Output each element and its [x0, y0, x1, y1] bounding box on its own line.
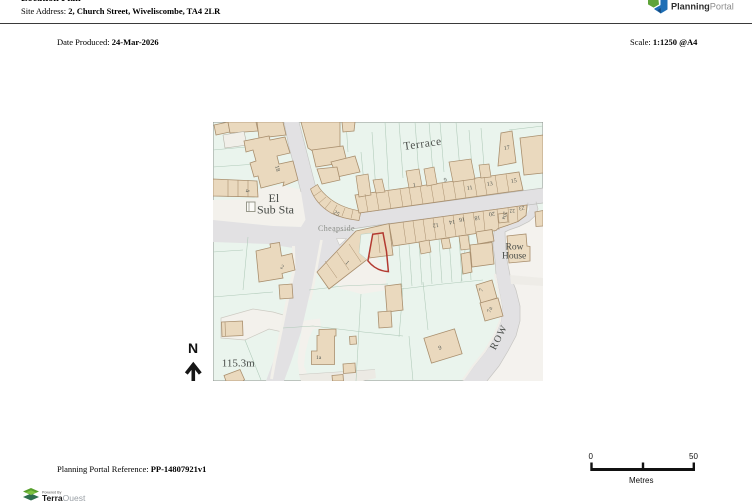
- svg-text:16: 16: [458, 215, 465, 222]
- svg-text:12: 12: [432, 221, 439, 228]
- svg-text:Sub Sta: Sub Sta: [257, 203, 295, 217]
- svg-text:PlanningPortal: PlanningPortal: [671, 2, 734, 12]
- svg-text:11: 11: [466, 185, 473, 192]
- svg-text:1a: 1a: [316, 355, 322, 361]
- svg-text:TerraQuest: TerraQuest: [42, 493, 86, 501]
- svg-text:115.3m: 115.3m: [222, 358, 255, 370]
- svg-text:22: 22: [509, 207, 516, 214]
- svg-text:15: 15: [510, 178, 517, 185]
- svg-text:13: 13: [486, 181, 493, 188]
- svg-text:14: 14: [449, 218, 456, 225]
- svg-text:18: 18: [474, 214, 481, 221]
- svg-text:17: 17: [503, 145, 510, 152]
- svg-text:Cheapside: Cheapside: [318, 224, 355, 233]
- svg-text:20: 20: [488, 210, 495, 217]
- svg-text:23: 23: [518, 204, 525, 211]
- svg-text:House: House: [502, 252, 526, 262]
